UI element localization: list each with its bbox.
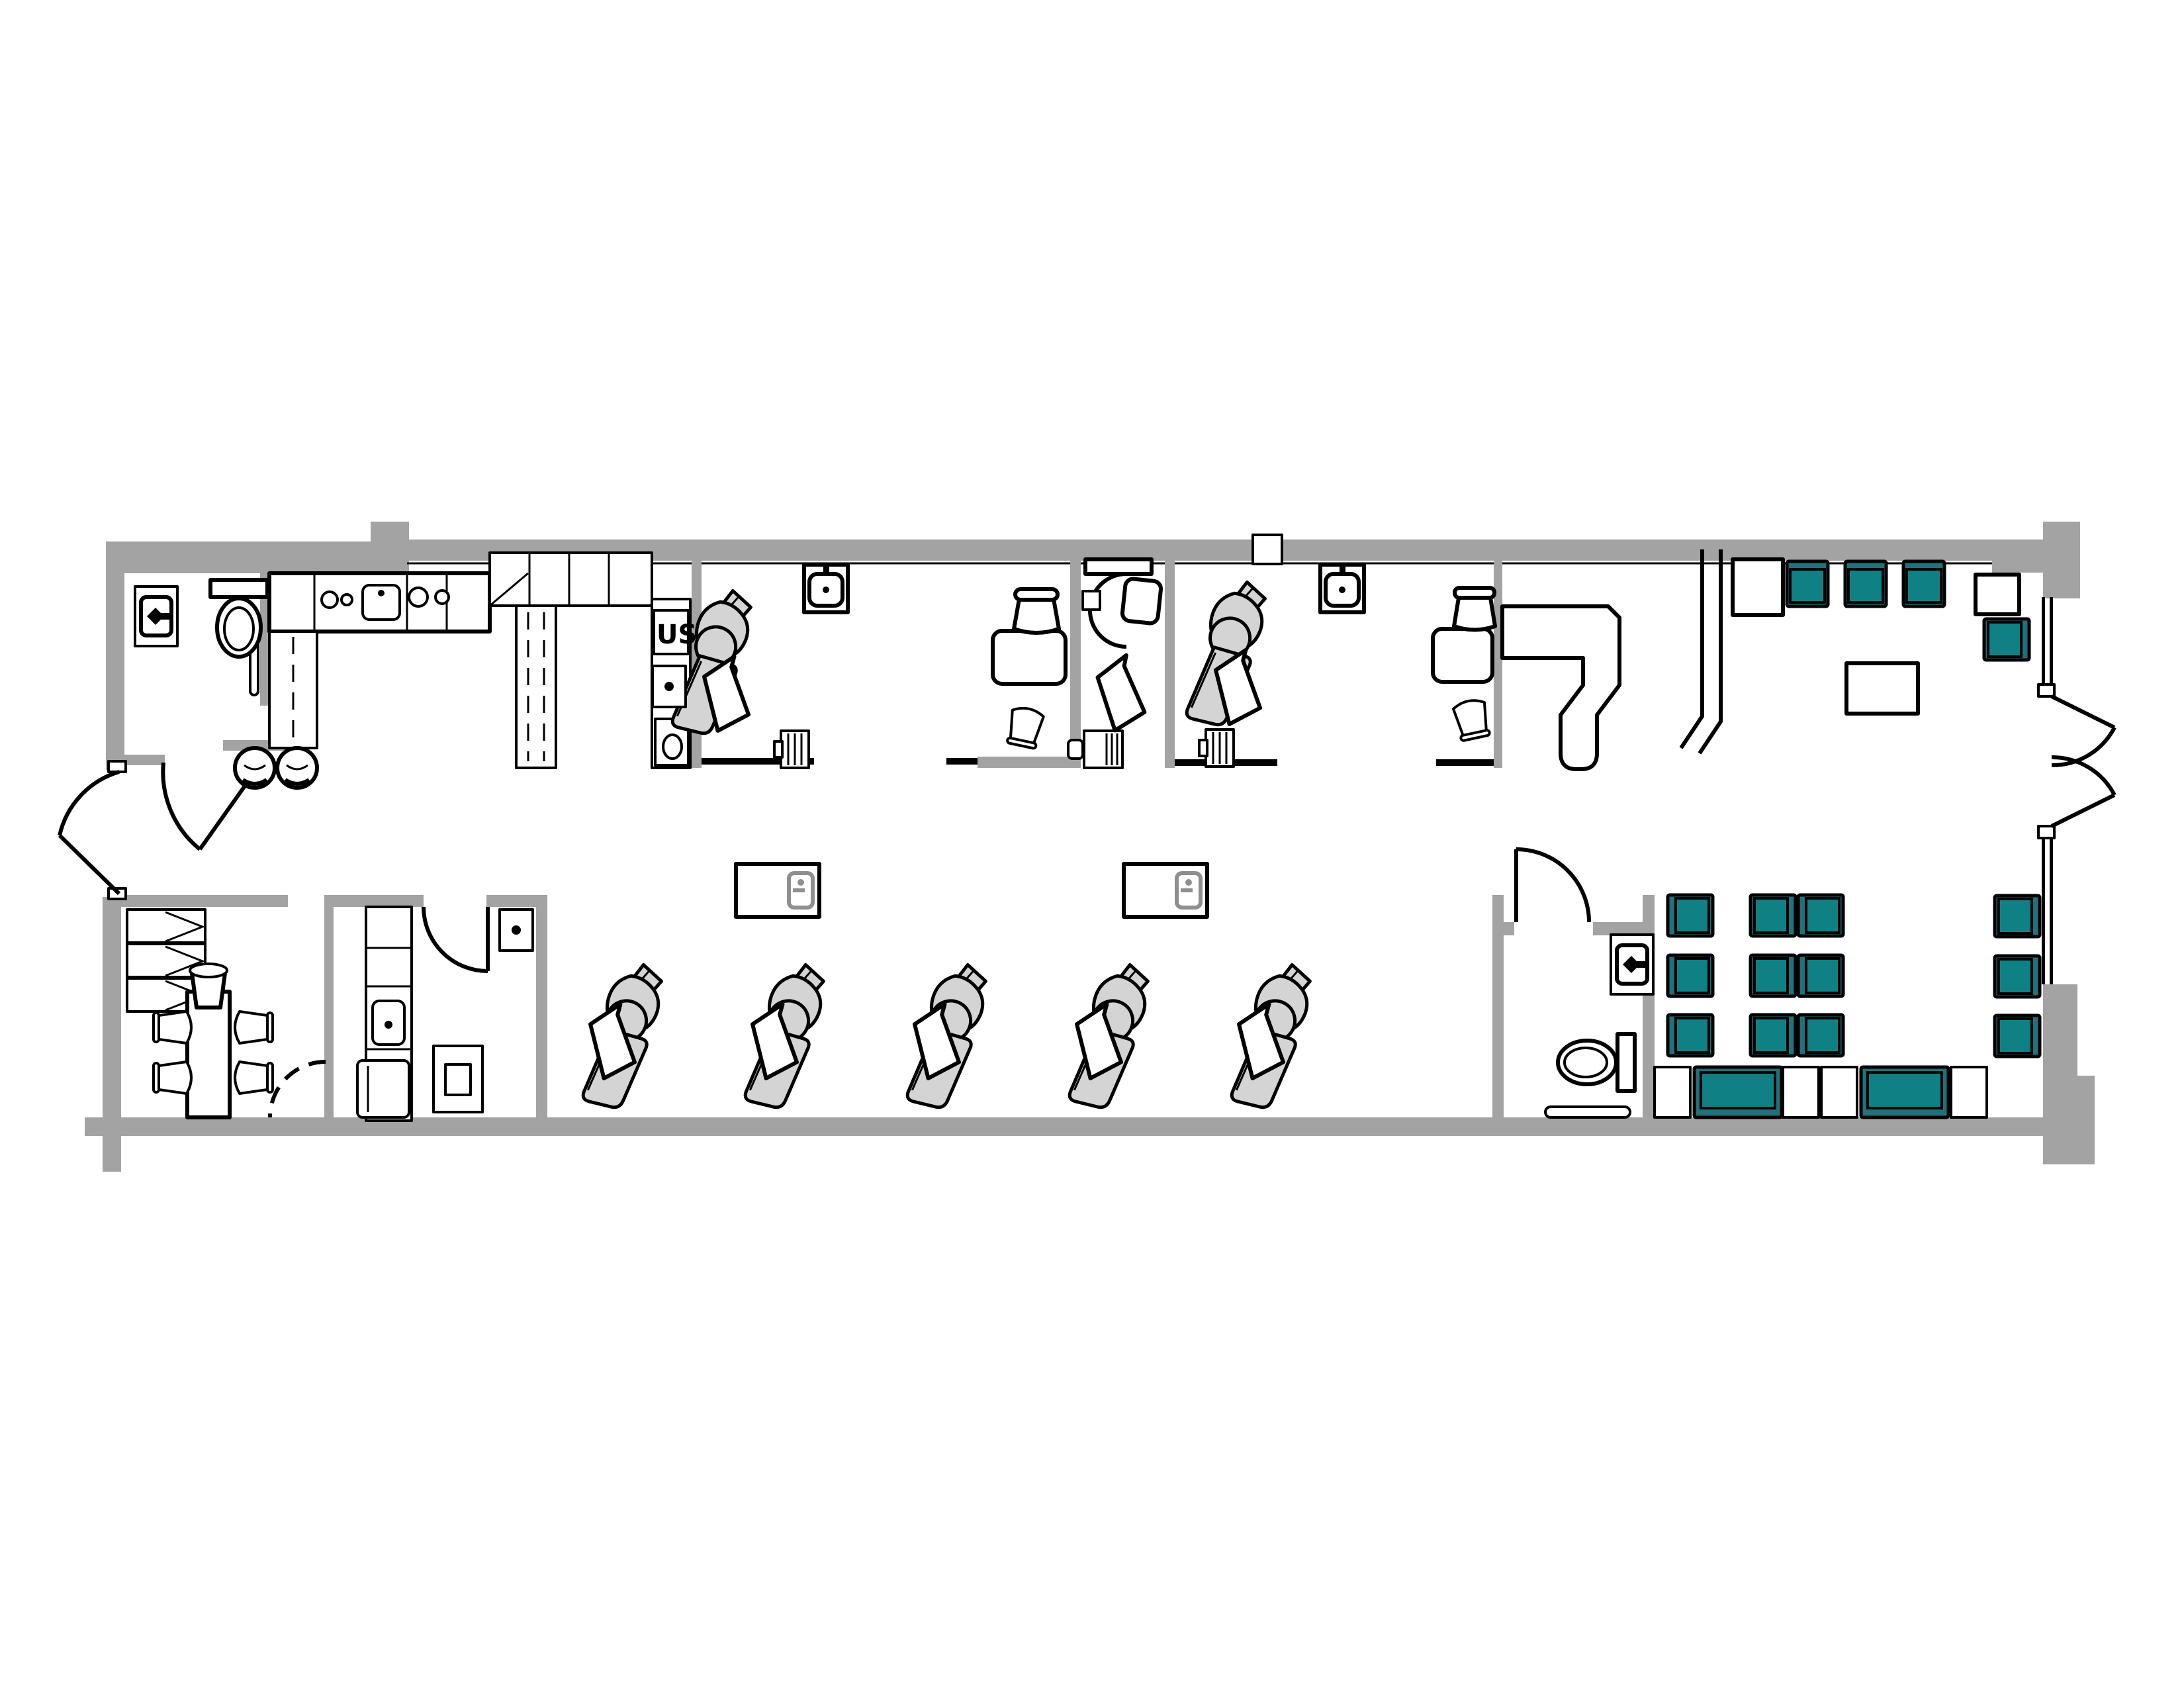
task-chair <box>235 1062 273 1094</box>
wall-op2-right <box>1494 553 1502 768</box>
task-chair <box>1005 706 1044 749</box>
left-door-jamb-top <box>109 761 126 772</box>
sink <box>1320 563 1364 612</box>
office-door-arc <box>424 907 488 971</box>
op1-desk <box>993 631 1066 684</box>
sink <box>804 563 848 612</box>
column-bottom-right-1 <box>2043 984 2077 1077</box>
faucet-knob <box>322 592 338 608</box>
dispensers <box>135 586 1653 994</box>
wall-restroom2-right <box>1643 895 1655 1117</box>
island-cabinet <box>736 864 819 917</box>
stool <box>235 748 275 788</box>
bench-seats <box>1655 1067 1987 1117</box>
task-chair <box>235 1011 273 1043</box>
wall-left-upper <box>106 541 124 770</box>
waiting-chair <box>1995 896 2040 937</box>
plant <box>190 964 227 1008</box>
storage-cabinets <box>490 553 652 768</box>
cooktop-burner-1 <box>409 588 428 606</box>
interior-walls <box>121 553 1655 1117</box>
stools <box>235 748 317 788</box>
waiting-chair <box>1751 895 1796 936</box>
waiting-chair <box>1751 955 1796 996</box>
wall-office-right <box>536 895 547 1117</box>
waiting-chair <box>1995 1015 2040 1056</box>
bench-seat <box>1783 1067 1819 1117</box>
column-top-right <box>2043 522 2080 598</box>
faucet-knob-2 <box>341 594 352 605</box>
wall-breakroom-top <box>121 895 288 907</box>
operatory-1 <box>993 589 1066 684</box>
op2-jar <box>1454 588 1495 630</box>
wall-breakroom-right <box>324 895 334 1117</box>
hall-door-arc <box>1516 849 1589 922</box>
waiting-chairs <box>1668 561 2040 1056</box>
pass-through-window <box>1253 535 1282 564</box>
dental-clinic-floor-plan: US <box>0 0 2184 1688</box>
bench-seat <box>1861 1067 1948 1117</box>
cabinet <box>500 910 533 951</box>
upper-cabinet-row <box>490 553 652 606</box>
wall-top-left <box>109 541 408 573</box>
bench-seat <box>1655 1067 1690 1117</box>
coffee-table <box>1846 663 1918 714</box>
island-cabinet <box>1124 864 1207 917</box>
restroom1-door-arc <box>163 763 200 849</box>
ultrasonic-label: US <box>657 620 697 650</box>
corner-table <box>1976 575 2019 614</box>
wall-top-right-step <box>1992 539 2045 573</box>
waiting-chair <box>1668 895 1713 936</box>
islands <box>736 864 1207 917</box>
wall-restroom1-bottom-stub <box>124 755 165 765</box>
side-chair <box>1094 654 1147 731</box>
waiting-chair <box>1787 561 1828 606</box>
waiting-chair <box>1798 895 1843 936</box>
kitchenette <box>269 573 490 748</box>
pano-track <box>1085 559 1152 574</box>
restroom-2 <box>1545 1107 1630 1117</box>
breakroom-door-arc <box>270 1062 326 1117</box>
task-chair <box>1453 698 1492 741</box>
op1-jar <box>1014 589 1059 633</box>
reception <box>1502 549 1721 769</box>
cooktop-burner-2 <box>435 590 449 604</box>
reception-rail-1 <box>1681 549 1702 748</box>
stool <box>277 748 317 788</box>
floor-mat <box>1545 1107 1630 1117</box>
waiting-chair <box>1995 956 2040 997</box>
break-table <box>187 992 230 1117</box>
dispenser-icon <box>1611 935 1653 994</box>
entrance-doors <box>2038 684 2115 838</box>
waiting-chair <box>1798 955 1843 996</box>
sterilization-sink <box>663 735 682 759</box>
reception-desk <box>1502 606 1619 769</box>
waiting-chair <box>1668 955 1713 996</box>
waiting-chair <box>1798 1015 1843 1056</box>
exterior-left-door-arc <box>60 772 119 835</box>
storefront-glass <box>2042 597 2053 984</box>
end-table <box>1733 559 1783 615</box>
wall-lab-top <box>329 895 424 907</box>
exterior-left-door-leaf <box>60 835 119 894</box>
column-bottom-right-2 <box>2043 1076 2095 1164</box>
wall-op1-front-stub <box>978 757 1081 768</box>
floor-plan-page: US <box>0 0 2184 1688</box>
toilets <box>210 580 1635 1091</box>
waiting-chair <box>1751 1015 1796 1056</box>
op2-desk <box>1433 629 1492 682</box>
lab-chair <box>357 1060 409 1117</box>
waiting-chair <box>1845 561 1886 606</box>
bench-seat <box>1821 1067 1857 1117</box>
tall-closet <box>516 606 556 768</box>
task-chair <box>154 1062 191 1094</box>
bench-seat <box>1694 1067 1782 1117</box>
bench-seat <box>1951 1067 1987 1117</box>
wall-op1-right <box>1070 553 1081 758</box>
wall-op2-left <box>1165 553 1175 768</box>
wall-restroom2-door-stub <box>1504 922 1514 935</box>
pano-arm-rest <box>1083 591 1100 610</box>
private-office <box>433 1046 482 1112</box>
waiting-chair <box>1903 561 1944 606</box>
waiting-chair <box>1668 1015 1713 1056</box>
cabinet <box>653 666 686 707</box>
office-equipment <box>433 1046 482 1112</box>
task-chair <box>154 1011 191 1043</box>
toilet <box>1558 1034 1635 1091</box>
pano-seat <box>1122 578 1161 624</box>
dispenser-icon <box>135 586 177 646</box>
operatory-2 <box>1433 588 1495 682</box>
lab-area <box>357 907 412 1121</box>
waiting-chair <box>1984 619 2029 660</box>
wall-restroom2-left <box>1492 895 1504 1117</box>
